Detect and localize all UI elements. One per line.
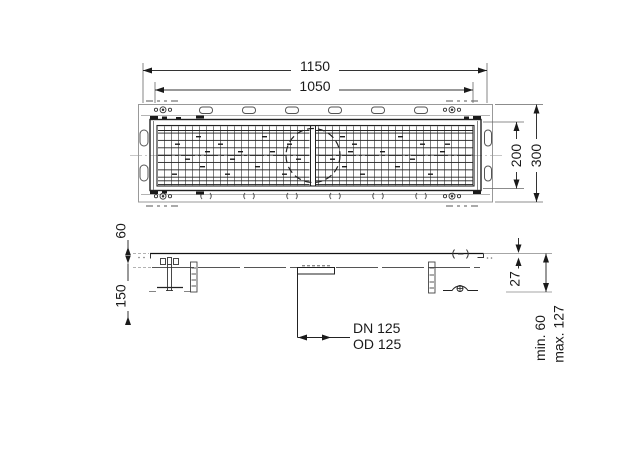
outlet-flange — [298, 268, 335, 275]
dim-install-depth-min: min. 60 — [532, 315, 548, 361]
dim-rim-height: 27 — [507, 271, 523, 287]
section-view: DN 125 OD 125 — [138, 250, 492, 353]
dim-grate-width: 200 — [508, 144, 524, 168]
plan-view — [130, 101, 502, 206]
right-foot — [443, 286, 478, 292]
section-dimensions: 60 150 27 min. 60 max. 127 — [113, 223, 567, 363]
left-foot — [149, 258, 191, 292]
right-bracket — [429, 262, 436, 293]
outlet-dn-label: DN 125 — [353, 320, 401, 336]
dim-inner-length: 1050 — [299, 78, 330, 94]
flange-slots-top — [200, 107, 428, 114]
dim-overall-width: 300 — [528, 144, 544, 168]
dim-overall-length: 1150 — [300, 58, 330, 74]
dim-install-depth-max: max. 127 — [551, 305, 567, 363]
drawing-canvas: 1150 1050 200 300 — [0, 0, 640, 453]
left-bracket — [191, 262, 198, 292]
dim-edge-height: 60 — [113, 223, 129, 239]
technical-drawing: 1150 1050 200 300 — [0, 0, 640, 453]
dim-leg-depth: 150 — [113, 284, 129, 308]
outlet-od-label: OD 125 — [353, 336, 401, 352]
flange-slots-bottom — [201, 193, 427, 199]
